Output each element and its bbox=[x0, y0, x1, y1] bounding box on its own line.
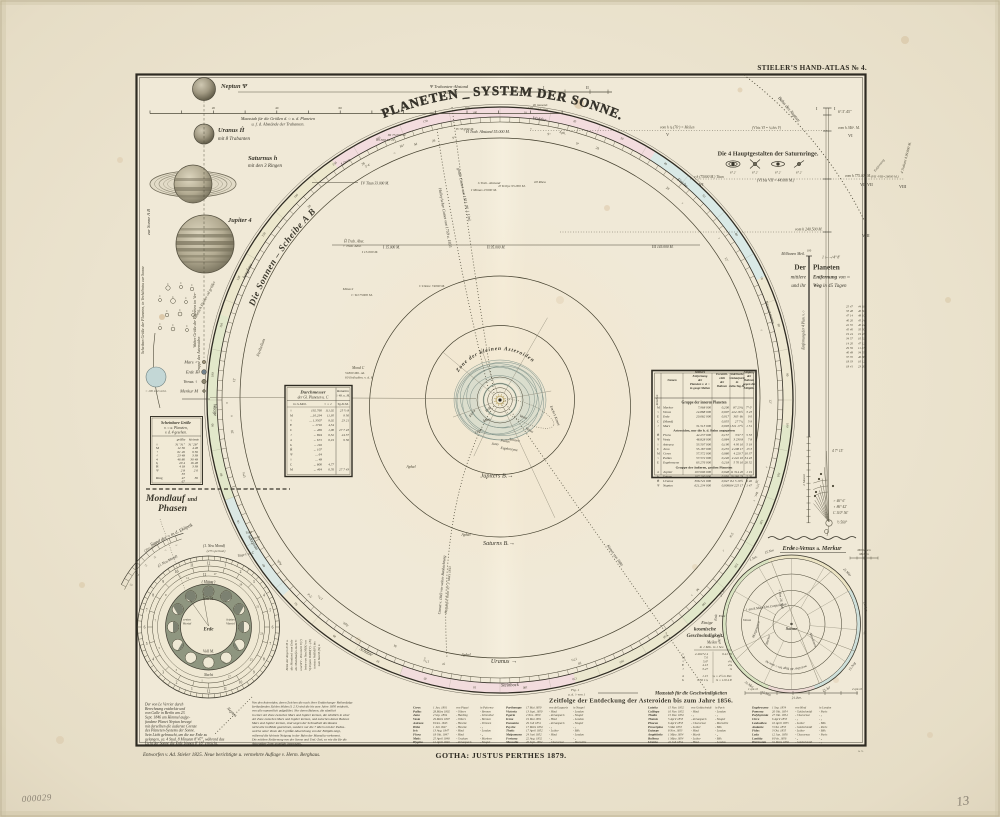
svg-text:Einige: Einige bbox=[700, 620, 713, 625]
svg-text:C: C bbox=[192, 310, 194, 313]
svg-text:21: 21 bbox=[256, 604, 260, 608]
svg-text:Ekliptik.: Ekliptik. bbox=[743, 386, 755, 390]
svg-text:C: C bbox=[180, 282, 182, 285]
svg-text:Durchmesser: Durchmesser bbox=[299, 390, 325, 395]
svg-text:4: 4 bbox=[263, 593, 265, 597]
svg-text:45 40: 45 40 bbox=[846, 328, 853, 332]
svg-text:♂: ♂ bbox=[290, 433, 292, 437]
svg-text:♀: ♀ bbox=[657, 410, 659, 414]
svg-text:- Goldschmidt: - Goldschmidt bbox=[795, 740, 812, 744]
svg-text:19 u ♀: 19 u ♀ bbox=[863, 626, 868, 636]
svg-text:7: 7 bbox=[146, 609, 148, 613]
svg-text:4 30 16: 4 30 16 bbox=[733, 442, 743, 446]
svg-text:3 97 7: 3 97 7 bbox=[735, 433, 743, 437]
svg-text:und NV - Bm nicht V(?): und NV - Bm nicht V(?) bbox=[299, 639, 303, 670]
svg-text:10: 10 bbox=[175, 570, 179, 574]
svg-text:C: C bbox=[186, 325, 188, 328]
svg-text:VI: VI bbox=[699, 182, 704, 187]
svg-text:C: C bbox=[172, 324, 174, 327]
svg-text:Aphel: Aphel bbox=[405, 464, 416, 469]
svg-text:Venus ♀: Venus ♀ bbox=[183, 379, 198, 384]
svg-text:6° 2′: 6° 2′ bbox=[796, 171, 802, 175]
svg-text:48 10: 48 10 bbox=[858, 314, 865, 318]
svg-text:♀ 86° 42′: ♀ 86° 42′ bbox=[833, 505, 847, 509]
svg-text:4 220 7: 4 220 7 bbox=[733, 452, 743, 456]
svg-text:Voll M.: Voll M. bbox=[203, 650, 214, 654]
svg-text:Venus: Venus bbox=[743, 618, 752, 622]
svg-text:9 56: 9 56 bbox=[343, 413, 349, 417]
svg-text:Meilen: Meilen bbox=[858, 552, 869, 556]
svg-text:Juno: Juno bbox=[663, 447, 670, 451]
svg-text:... 107: ... 107 bbox=[314, 448, 323, 452]
svg-text:... 894: ... 894 bbox=[314, 433, 323, 437]
svg-text:C Tel 75000 M.: C Tel 75000 M. bbox=[351, 293, 373, 297]
svg-text:4 7° 15′: 4 7° 15′ bbox=[832, 449, 843, 453]
svg-text:000029: 000029 bbox=[21, 792, 52, 804]
svg-text:... 671: ... 671 bbox=[314, 438, 323, 442]
svg-text:Ring: Ring bbox=[156, 476, 163, 480]
svg-text:44 18: 44 18 bbox=[858, 305, 865, 309]
svg-text:Neptun Ψ: Neptun Ψ bbox=[220, 83, 248, 90]
svg-text:67: 67 bbox=[182, 480, 186, 484]
svg-text:M: M bbox=[657, 406, 660, 410]
svg-text:180: 180 bbox=[472, 110, 478, 114]
svg-text:9 56: 9 56 bbox=[343, 438, 349, 442]
svg-text:Namen: Namen bbox=[666, 378, 677, 382]
svg-text:57.572 000: 57.572 000 bbox=[696, 452, 711, 456]
svg-text:8: 8 bbox=[152, 593, 154, 597]
svg-text:14 20: 14 20 bbox=[846, 341, 853, 345]
svg-text:23 21: 23 21 bbox=[342, 418, 350, 422]
svg-text:Saturns B.→: Saturns B.→ bbox=[483, 540, 515, 547]
svg-text:Steinbock: Steinbock bbox=[501, 682, 520, 688]
svg-text:○ 100 mal verkl.: ○ 100 mal verkl. bbox=[145, 389, 166, 393]
svg-text:Aphel: Aphel bbox=[460, 532, 471, 537]
svg-text:Jupiters B.→: Jupiters B.→ bbox=[481, 473, 514, 480]
svg-text:(1. Neu Mond): (1. Neu Mond) bbox=[203, 544, 226, 548]
svg-text:Erde: Erde bbox=[718, 614, 726, 618]
svg-text:5: 5 bbox=[269, 609, 271, 613]
svg-text:von Galle in Berlin am 23.: von Galle in Berlin am 23. bbox=[145, 711, 186, 715]
svg-text:Merkur: Merkur bbox=[662, 406, 674, 410]
svg-text:Neptun: Neptun bbox=[662, 484, 673, 488]
svg-text:... 464: ... 464 bbox=[314, 467, 323, 471]
svg-text:Euphrosyne: Euphrosyne bbox=[662, 461, 680, 465]
svg-text:27 7 43: 27 7 43 bbox=[339, 428, 349, 432]
svg-text:Mond C: Mond C bbox=[351, 366, 365, 370]
svg-text:- Hind: - Hind bbox=[691, 740, 699, 744]
svg-text:29 166 23: 29 166 23 bbox=[730, 475, 743, 479]
svg-text:7: 7 bbox=[269, 642, 271, 646]
svg-text:a. v.: a. v. bbox=[858, 749, 864, 753]
svg-text:396.741 000: 396.741 000 bbox=[695, 479, 712, 483]
svg-text:Saturnus h: Saturnus h bbox=[248, 155, 278, 162]
svg-text:Mars: Mars bbox=[662, 424, 671, 428]
svg-text:Weg in 45 Tagen: Weg in 45 Tagen bbox=[813, 284, 847, 289]
svg-text:Saturn: Saturn bbox=[663, 475, 672, 479]
svg-text:1: 1 bbox=[191, 687, 193, 691]
svg-text:11: 11 bbox=[186, 576, 189, 580]
svg-text:Flora: Flora bbox=[662, 433, 671, 437]
svg-text:vom h ¼ (76º) = Meilen: vom h ¼ (76º) = Meilen bbox=[660, 126, 695, 130]
svg-text:180: 180 bbox=[522, 685, 528, 689]
svg-text:Entworfen v. Ad. Stieler 1825.: Entworfen v. Ad. Stieler 1825. Neue beri… bbox=[142, 753, 320, 758]
svg-text:○ = 1: ○ = 1 bbox=[324, 402, 332, 406]
svg-text:60: 60 bbox=[339, 106, 343, 110]
svg-text:Gruppe der inneren Planeten: Gruppe der inneren Planeten bbox=[682, 401, 727, 405]
svg-text:25 47: 25 47 bbox=[846, 305, 853, 309]
svg-text:Minas I: Minas I bbox=[342, 287, 354, 291]
svg-text:Beim der Regen N M u.: Beim der Regen N M u. bbox=[285, 639, 289, 670]
svg-text:5: 5 bbox=[146, 642, 148, 646]
svg-text:○: ○ bbox=[290, 458, 292, 462]
svg-text:16 12: 16 12 bbox=[858, 360, 865, 364]
svg-text:40 48: 40 48 bbox=[846, 351, 853, 355]
svg-text:Millionen Meil.: Millionen Meil. bbox=[780, 252, 805, 256]
svg-text:34 57: 34 57 bbox=[846, 337, 853, 341]
svg-text:Meilen: Meilen bbox=[538, 108, 548, 112]
svg-text:63.276 000: 63.276 000 bbox=[696, 461, 711, 465]
svg-text:♂ 46° 6′: ♂ 46° 6′ bbox=[833, 499, 845, 503]
svg-text:40 26: 40 26 bbox=[846, 318, 853, 322]
svg-text:Jupiter 4: Jupiter 4 bbox=[227, 217, 252, 224]
svg-text:vom h 775.000 M.: vom h 775.000 M. bbox=[845, 174, 871, 178]
svg-text:- Marseille: - Marseille bbox=[573, 740, 587, 744]
svg-text:Erde: Erde bbox=[662, 415, 670, 419]
svg-text:Ĥ Trab. Abst.: Ĥ Trab. Abst. bbox=[343, 239, 364, 244]
svg-text:Hygiea: Hygiea bbox=[412, 740, 423, 744]
svg-text:53.507 000: 53.507 000 bbox=[696, 442, 711, 446]
svg-text:6° 2′: 6° 2′ bbox=[730, 171, 736, 175]
svg-text:Planeten: Planeten bbox=[813, 264, 840, 272]
svg-text:v. d. 4 gesehen.: v. d. 4 gesehen. bbox=[165, 431, 187, 435]
svg-text:mit 8 Trabanten: mit 8 Trabanten bbox=[218, 137, 250, 142]
svg-text:3.27: 3.27 bbox=[702, 667, 708, 671]
svg-text:der Gl. Planeten u. C: der Gl. Planeten u. C bbox=[298, 396, 329, 400]
svg-text:Massalia: Massalia bbox=[505, 740, 519, 744]
svg-text:19: 19 bbox=[239, 583, 243, 587]
svg-text:- London: - London bbox=[715, 740, 726, 744]
svg-text:und ihr: und ihr bbox=[791, 284, 806, 289]
svg-text:... 48: ... 48 bbox=[315, 458, 322, 462]
svg-text:... 800: ... 800 bbox=[314, 462, 323, 466]
svg-text:60 Erdhalbm. v. d. E: 60 Erdhalbm. v. d. E bbox=[345, 376, 374, 380]
svg-text:25: 25 bbox=[250, 657, 254, 661]
svg-text:... 1.3507: ... 1.3507 bbox=[309, 418, 322, 422]
svg-text:in G.Meil.: in G.Meil. bbox=[293, 402, 307, 406]
svg-text:Fig. 1: Fig. 1 bbox=[570, 688, 579, 692]
svg-text:22 55: 22 55 bbox=[846, 323, 853, 327]
svg-text:Scheinbare Größe: Scheinbare Größe bbox=[161, 420, 191, 425]
svg-text:Entfernung von ○: Entfernung von ○ bbox=[812, 276, 850, 281]
svg-text:I Mimas 25000 M.: I Mimas 25000 M. bbox=[470, 188, 497, 192]
svg-text:in geogr.Meilen: in geogr.Meilen bbox=[690, 386, 710, 390]
svg-text:40: 40 bbox=[275, 106, 279, 110]
svg-text:in 1 Min. in 1 Sec.: in 1 Min. in 1 Sec. bbox=[700, 645, 725, 649]
svg-text:3: 3 bbox=[162, 671, 164, 675]
svg-text:Waage: Waage bbox=[213, 404, 218, 416]
svg-text:11: 11 bbox=[190, 564, 194, 568]
svg-text:621.234 000: 621.234 000 bbox=[695, 484, 712, 488]
svg-text:13 3: 13 3 bbox=[746, 447, 752, 451]
svg-text:Der von Le Verrier durch: Der von Le Verrier durch bbox=[144, 703, 184, 707]
svg-text:- deGasparis: - deGasparis bbox=[456, 740, 472, 744]
svg-text:33 48: 33 48 bbox=[846, 309, 853, 313]
svg-text:Geschwindigkeit.: Geschwindigkeit. bbox=[687, 633, 724, 639]
svg-text:○: ○ bbox=[530, 127, 533, 131]
svg-text:Erde: Erde bbox=[203, 628, 215, 633]
svg-text:E: E bbox=[290, 423, 292, 427]
svg-text:IV 33.000 M.: IV 33.000 M. bbox=[455, 127, 475, 131]
svg-text:beim von NeuM(N) wo: beim von NeuM(N) wo bbox=[303, 640, 307, 670]
svg-text:29 59: 29 59 bbox=[846, 346, 853, 350]
svg-text:VIII: VIII bbox=[862, 233, 870, 238]
svg-text:17: 17 bbox=[214, 572, 218, 576]
svg-text:Viertel: Viertel bbox=[183, 622, 192, 626]
svg-text:9: 9 bbox=[162, 580, 164, 584]
svg-text:25 ½ 8: 25 ½ 8 bbox=[340, 409, 349, 413]
svg-text:... 116: ... 116 bbox=[314, 443, 322, 447]
svg-text:12: 12 bbox=[207, 561, 211, 565]
svg-text:C Dione 74000 M.: C Dione 74000 M. bbox=[419, 284, 445, 288]
svg-text:3 230 8: 3 230 8 bbox=[733, 438, 743, 442]
svg-text:Vesta: Vesta bbox=[663, 438, 670, 442]
svg-text:M: M bbox=[657, 452, 660, 456]
svg-text:27 7¾: 27 7¾ bbox=[735, 419, 744, 423]
svg-text:6° 2′: 6° 2′ bbox=[775, 171, 781, 175]
svg-text:fundene Planet Neptun bewegt: fundene Planet Neptun bewegt bbox=[145, 720, 192, 724]
svg-text:37 35: 37 35 bbox=[846, 355, 853, 359]
svg-text:Maasstab für die Geschwindigke: Maasstab für die Geschwindigkeiten bbox=[654, 692, 727, 697]
svg-text:Uranus Ĥ: Uranus Ĥ bbox=[218, 126, 245, 134]
svg-text:0 0: 0 0 bbox=[748, 415, 752, 419]
svg-text:Juno: Juno bbox=[491, 442, 499, 447]
svg-text:mit den 3 Ringen: mit den 3 Ringen bbox=[248, 164, 283, 169]
svg-text:des Planeten-Systems der Sonne: des Planeten-Systems der Sonne. bbox=[145, 729, 195, 733]
svg-text:12 April 1849: 12 April 1849 bbox=[433, 740, 450, 744]
svg-text:2: 2 bbox=[176, 681, 178, 685]
svg-text:Zeitfolge der Entdeckung der A: Zeitfolge der Entdeckung der Asteroiden … bbox=[549, 698, 733, 705]
svg-text:(Mond): (Mond) bbox=[663, 419, 674, 423]
svg-text:100: 100 bbox=[785, 423, 789, 429]
svg-text:Erde: Erde bbox=[713, 614, 718, 622]
svg-text:27: 27 bbox=[228, 674, 232, 678]
svg-text:Phasen: Phasen bbox=[158, 504, 187, 514]
svg-text:5 53: 5 53 bbox=[746, 433, 752, 437]
svg-text:0.56 1¾: 0.56 1¾ bbox=[697, 678, 708, 682]
svg-text:5 19: 5 19 bbox=[746, 442, 752, 446]
svg-text:11: 11 bbox=[223, 687, 227, 691]
svg-text:21.Jun.: 21.Jun. bbox=[792, 695, 802, 700]
svg-text:Nacht: Nacht bbox=[203, 673, 214, 677]
svg-text:8: 8 bbox=[263, 657, 265, 661]
svg-text:34 55: 34 55 bbox=[858, 351, 865, 355]
svg-text:47 14: 47 14 bbox=[846, 314, 853, 318]
svg-text:20.682 000: 20.682 000 bbox=[696, 415, 711, 419]
svg-text:18 33: 18 33 bbox=[846, 360, 853, 364]
svg-text:⅛ = 110 4 P.: ⅛ = 110 4 P. bbox=[716, 678, 733, 682]
svg-text:12: 12 bbox=[203, 573, 207, 577]
svg-text:4 222 10: 4 222 10 bbox=[732, 456, 744, 460]
svg-text:7 8: 7 8 bbox=[748, 438, 752, 442]
svg-text:C: C bbox=[159, 323, 161, 326]
svg-text:III 75.000 M.: III 75.000 M. bbox=[387, 133, 407, 137]
svg-text:12′: 12′ bbox=[232, 378, 236, 383]
svg-text:Zeichen: Zeichen bbox=[655, 394, 659, 405]
svg-text:35 50: 35 50 bbox=[858, 328, 865, 332]
svg-text:○: ○ bbox=[657, 442, 659, 446]
svg-text:Merkur M: Merkur M bbox=[179, 389, 198, 394]
svg-text:(V bis VI = ¼ bis V): (V bis VI = ¼ bis V) bbox=[752, 126, 782, 130]
svg-text:III Rhea: III Rhea bbox=[533, 180, 546, 184]
svg-text:34 43: 34 43 bbox=[745, 456, 753, 460]
svg-text:12: 12 bbox=[207, 689, 211, 693]
svg-text:4: 4 bbox=[152, 657, 154, 661]
svg-text:9: 9 bbox=[253, 671, 255, 675]
svg-text:Jupiter: Jupiter bbox=[663, 470, 673, 474]
svg-text:... 1716: ... 1716 bbox=[312, 423, 322, 427]
svg-text:M: M bbox=[290, 413, 293, 417]
svg-text:zur Sonne A B: zur Sonne A B bbox=[146, 209, 151, 236]
svg-text:kosmische: kosmische bbox=[694, 627, 717, 633]
svg-text:11 314 20: 11 314 20 bbox=[730, 470, 743, 474]
svg-text:46 38: 46 38 bbox=[858, 355, 865, 359]
svg-text:1 qm=0: 1 qm=0 bbox=[748, 687, 758, 691]
svg-text:164 225 17: 164 225 17 bbox=[728, 484, 743, 488]
svg-text:Asteroiden, nur die h. d. Bahn: Asteroiden, nur die h. d. Bahn angegeben bbox=[673, 429, 735, 433]
svg-text:IV Titan 33.000 M.: IV Titan 33.000 M. bbox=[361, 181, 389, 186]
svg-text:♀: ♀ bbox=[657, 456, 659, 460]
svg-text:4 208 17: 4 208 17 bbox=[732, 447, 744, 451]
svg-text:Entfernung der 4 Plan. v. ○: Entfernung der 4 Plan. v. ○ bbox=[802, 310, 806, 350]
svg-text:Ceres: Ceres bbox=[663, 452, 671, 456]
svg-text:55.187 000: 55.187 000 bbox=[696, 447, 711, 451]
svg-text:Uranus: Uranus bbox=[663, 479, 674, 483]
svg-text:57.572 000: 57.572 000 bbox=[696, 456, 711, 460]
svg-text:C: C bbox=[172, 296, 174, 299]
svg-text:Gruppe der äußeren, großen Pla: Gruppe der äußeren, großen Planeten bbox=[676, 465, 733, 469]
svg-text:II Tethys 95.000 M.: II Tethys 95.000 M. bbox=[497, 184, 525, 188]
svg-text:mittlere: mittlere bbox=[791, 276, 807, 281]
svg-text:C: C bbox=[167, 283, 169, 286]
svg-text:2 Monat: 2 Monat bbox=[802, 473, 806, 485]
svg-text:22 Juli 1854: 22 Juli 1854 bbox=[668, 740, 683, 744]
svg-text:7° 0′: 7° 0′ bbox=[746, 406, 752, 410]
svg-text:48.828 000: 48.828 000 bbox=[696, 438, 711, 442]
svg-text:Maasstab für die Größen d. ○: Maasstab für die Größen d. ○ u. d. Plane… bbox=[240, 116, 315, 121]
svg-text:Aphel: Aphel bbox=[460, 652, 471, 657]
svg-text:5 9: 5 9 bbox=[748, 419, 752, 423]
svg-text:Erde . Venus u. Merkur: Erde . Venus u. Merkur bbox=[781, 545, 842, 552]
svg-text:GOTHA: JUSTUS PERTHES 1879.: GOTHA: JUSTUS PERTHES 1879. bbox=[436, 751, 567, 760]
svg-text:1 51: 1 51 bbox=[746, 424, 752, 428]
svg-text:Tg.St.M.: Tg.St.M. bbox=[337, 402, 348, 406]
svg-text:♀: ♀ bbox=[290, 418, 292, 422]
svg-text:(VII -VIII=28000 M.): (VII -VIII=28000 M.) bbox=[871, 175, 899, 179]
svg-text:Der: Der bbox=[794, 264, 806, 272]
svg-text:7.968 000: 7.968 000 bbox=[698, 406, 712, 410]
svg-text:VII: VII bbox=[867, 182, 873, 187]
svg-text:36: 36 bbox=[195, 476, 199, 480]
svg-text:♂: ♂ bbox=[682, 667, 684, 671]
svg-text:24 37: 24 37 bbox=[342, 433, 350, 437]
svg-text:die Mondend vom Erde: die Mondend vom Erde bbox=[290, 639, 294, 670]
svg-text:47 12: 47 12 bbox=[858, 341, 865, 345]
svg-text:100: 100 bbox=[464, 106, 469, 110]
svg-text:E: E bbox=[657, 415, 659, 419]
svg-text:V(45)am VollM(V) - (N): V(45)am VollM(V) - (N) bbox=[308, 639, 312, 671]
svg-text:40 50: 40 50 bbox=[858, 309, 865, 313]
svg-text:Viertel: Viertel bbox=[226, 622, 235, 626]
svg-text:1 47: 1 47 bbox=[746, 484, 752, 488]
svg-text:197.290 000: 197.290 000 bbox=[695, 475, 712, 479]
svg-text:1 19: 1 19 bbox=[746, 470, 752, 474]
svg-text:M: M bbox=[290, 467, 293, 471]
svg-text:6°.5′.45″: 6°.5′.45″ bbox=[838, 110, 852, 114]
svg-text:kleinste: kleinste bbox=[189, 438, 200, 442]
svg-text:Gruppe des Asteroiden: Gruppe des Asteroiden bbox=[196, 337, 201, 374]
svg-text:6: 6 bbox=[144, 625, 146, 629]
svg-text:u. f. d. Abstände der Trabante: u. f. d. Abstände der Trabanten. bbox=[251, 122, 304, 127]
svg-text:365 6h: 365 6h bbox=[733, 415, 743, 419]
svg-text:6: 6 bbox=[272, 625, 274, 629]
svg-text:C: C bbox=[657, 447, 659, 451]
svg-text:STIELER’S HAND-ATLAS № 4.: STIELER’S HAND-ATLAS № 4. bbox=[757, 64, 867, 72]
svg-text:(27⅓ period.): (27⅓ period.) bbox=[207, 549, 227, 553]
svg-text:10: 10 bbox=[239, 681, 243, 685]
svg-text:Meilen: Meilen bbox=[706, 641, 717, 645]
svg-text:Urania: Urania bbox=[648, 740, 658, 744]
svg-text:a. d. ○ von 1: a. d. ○ von 1 bbox=[568, 693, 585, 697]
svg-text:63.500 M. II: 63.500 M. II bbox=[376, 138, 394, 142]
svg-text:... 64: ... 64 bbox=[315, 453, 322, 457]
svg-text:3 23: 3 23 bbox=[746, 410, 752, 414]
svg-text:Mars ♂: Mars ♂ bbox=[183, 360, 198, 365]
svg-text:Harmonia: Harmonia bbox=[751, 740, 766, 744]
svg-text:♀ Trab. Abst.: ♀ Trab. Abst. bbox=[343, 244, 362, 248]
svg-text:23: 23 bbox=[260, 632, 264, 636]
svg-text:84 5 19½: 84 5 19½ bbox=[730, 479, 743, 483]
svg-text:E: E bbox=[657, 461, 659, 465]
svg-text:C: C bbox=[657, 419, 659, 423]
svg-text:(VI bis VII = 44.000 M.): (VI bis VII = 44.000 M.) bbox=[757, 179, 795, 183]
svg-text:- Chacornac: - Chacornac bbox=[549, 740, 565, 744]
svg-text:26 52: 26 52 bbox=[745, 461, 753, 465]
svg-text:h Trab. Abstand: h Trab. Abstand bbox=[478, 181, 501, 185]
svg-text:Astraea: Astraea bbox=[662, 442, 674, 446]
svg-text:40 44: 40 44 bbox=[858, 323, 865, 327]
svg-text:Die 4 Hauptgestalten der Satur: Die 4 Hauptgestalten der Saturnringe. bbox=[718, 151, 819, 158]
svg-text:vom h 240.500 M.: vom h 240.500 M. bbox=[795, 228, 823, 232]
svg-text:192.760: 192.760 bbox=[311, 409, 322, 413]
svg-text:100: 100 bbox=[210, 372, 214, 378]
svg-text:31.513 000: 31.513 000 bbox=[696, 424, 711, 428]
svg-text:½ 560°: ½ 560° bbox=[836, 521, 848, 525]
svg-text:14.888 000: 14.888 000 bbox=[696, 410, 711, 414]
svg-text:C 110° 56′: C 110° 56′ bbox=[833, 511, 848, 515]
svg-text:II 95.000 M.: II 95.000 M. bbox=[487, 245, 505, 250]
svg-text:C: C bbox=[179, 309, 181, 312]
svg-text:III 145.000 M.: III 145.000 M. bbox=[652, 244, 674, 249]
svg-text:1 ⊢ ⊣ 4° 8′: 1 ⊢ ⊣ 4° 8′ bbox=[822, 256, 840, 260]
svg-text:VIII: VIII bbox=[899, 184, 907, 189]
svg-text:VII: VII bbox=[860, 182, 867, 187]
svg-text:20: 20 bbox=[212, 106, 216, 110]
svg-text:... 469: ... 469 bbox=[314, 428, 323, 432]
svg-text:Venus: Venus bbox=[663, 410, 672, 414]
svg-text:2 29: 2 29 bbox=[746, 475, 752, 479]
svg-text:6° 2′: 6° 2′ bbox=[752, 171, 758, 175]
